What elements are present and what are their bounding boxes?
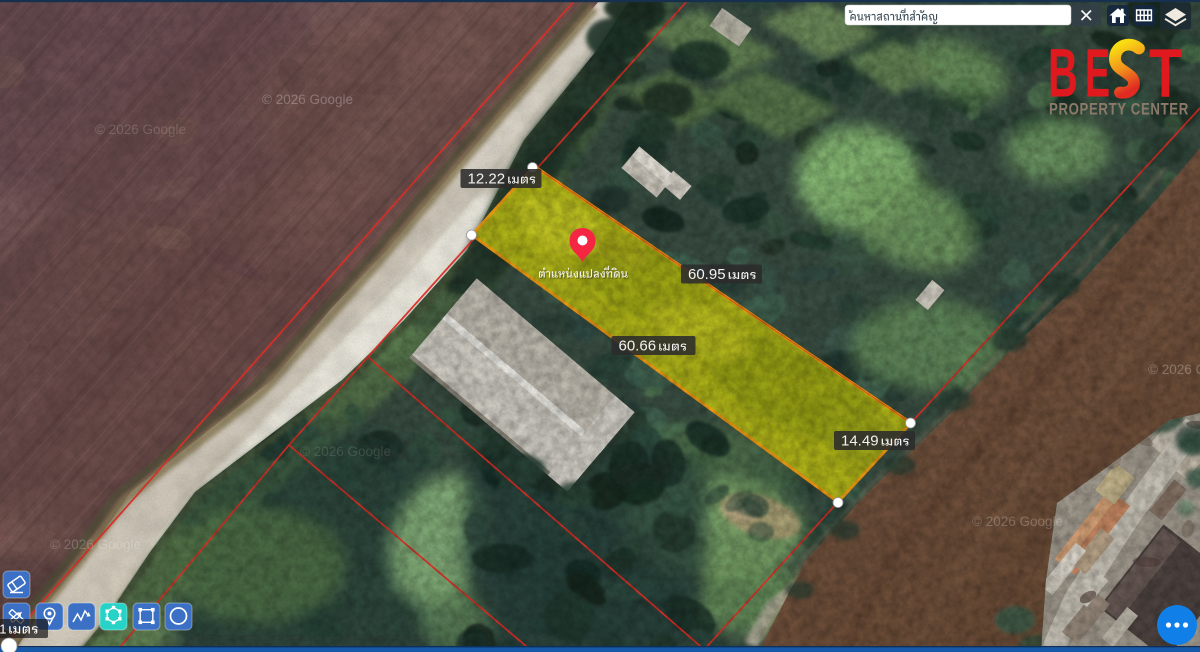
svg-text:60.66: 60.66: [619, 338, 657, 355]
svg-text:© 2026 Google: © 2026 Google: [95, 122, 186, 137]
svg-text:© 2026 Google: © 2026 Google: [972, 514, 1063, 529]
svg-text:© 2026 Google: © 2026 Google: [300, 444, 391, 459]
svg-text:12.22: 12.22: [468, 171, 506, 188]
svg-text:60.95: 60.95: [688, 266, 726, 283]
svg-text:© 2026 Google: © 2026 Google: [262, 92, 353, 107]
svg-text:14.49: 14.49: [841, 433, 879, 450]
svg-text:© 2026 Google: © 2026 Google: [1148, 362, 1200, 377]
svg-text:© 2026 Google: © 2026 Google: [50, 537, 141, 552]
svg-text:PROPERTY CENTER: PROPERTY CENTER: [1049, 100, 1189, 119]
svg-text:61: 61: [0, 622, 6, 637]
